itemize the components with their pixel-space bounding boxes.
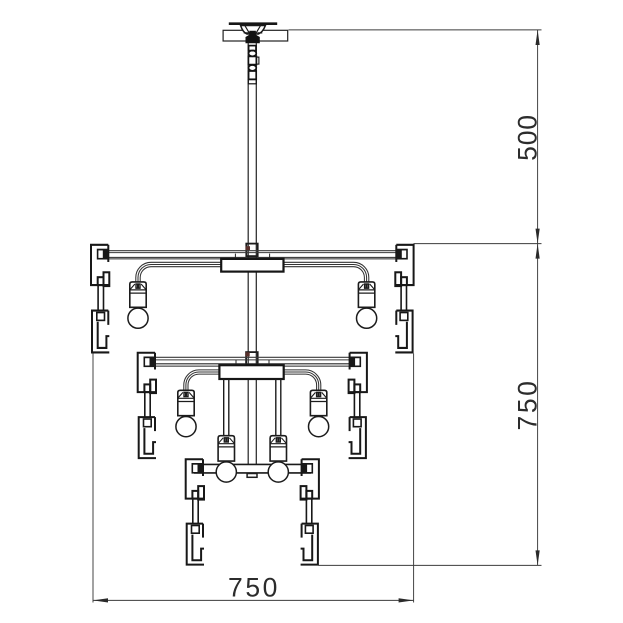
svg-text:750: 750 — [512, 378, 542, 430]
svg-text:500: 500 — [512, 114, 542, 161]
svg-text:750: 750 — [228, 573, 280, 603]
